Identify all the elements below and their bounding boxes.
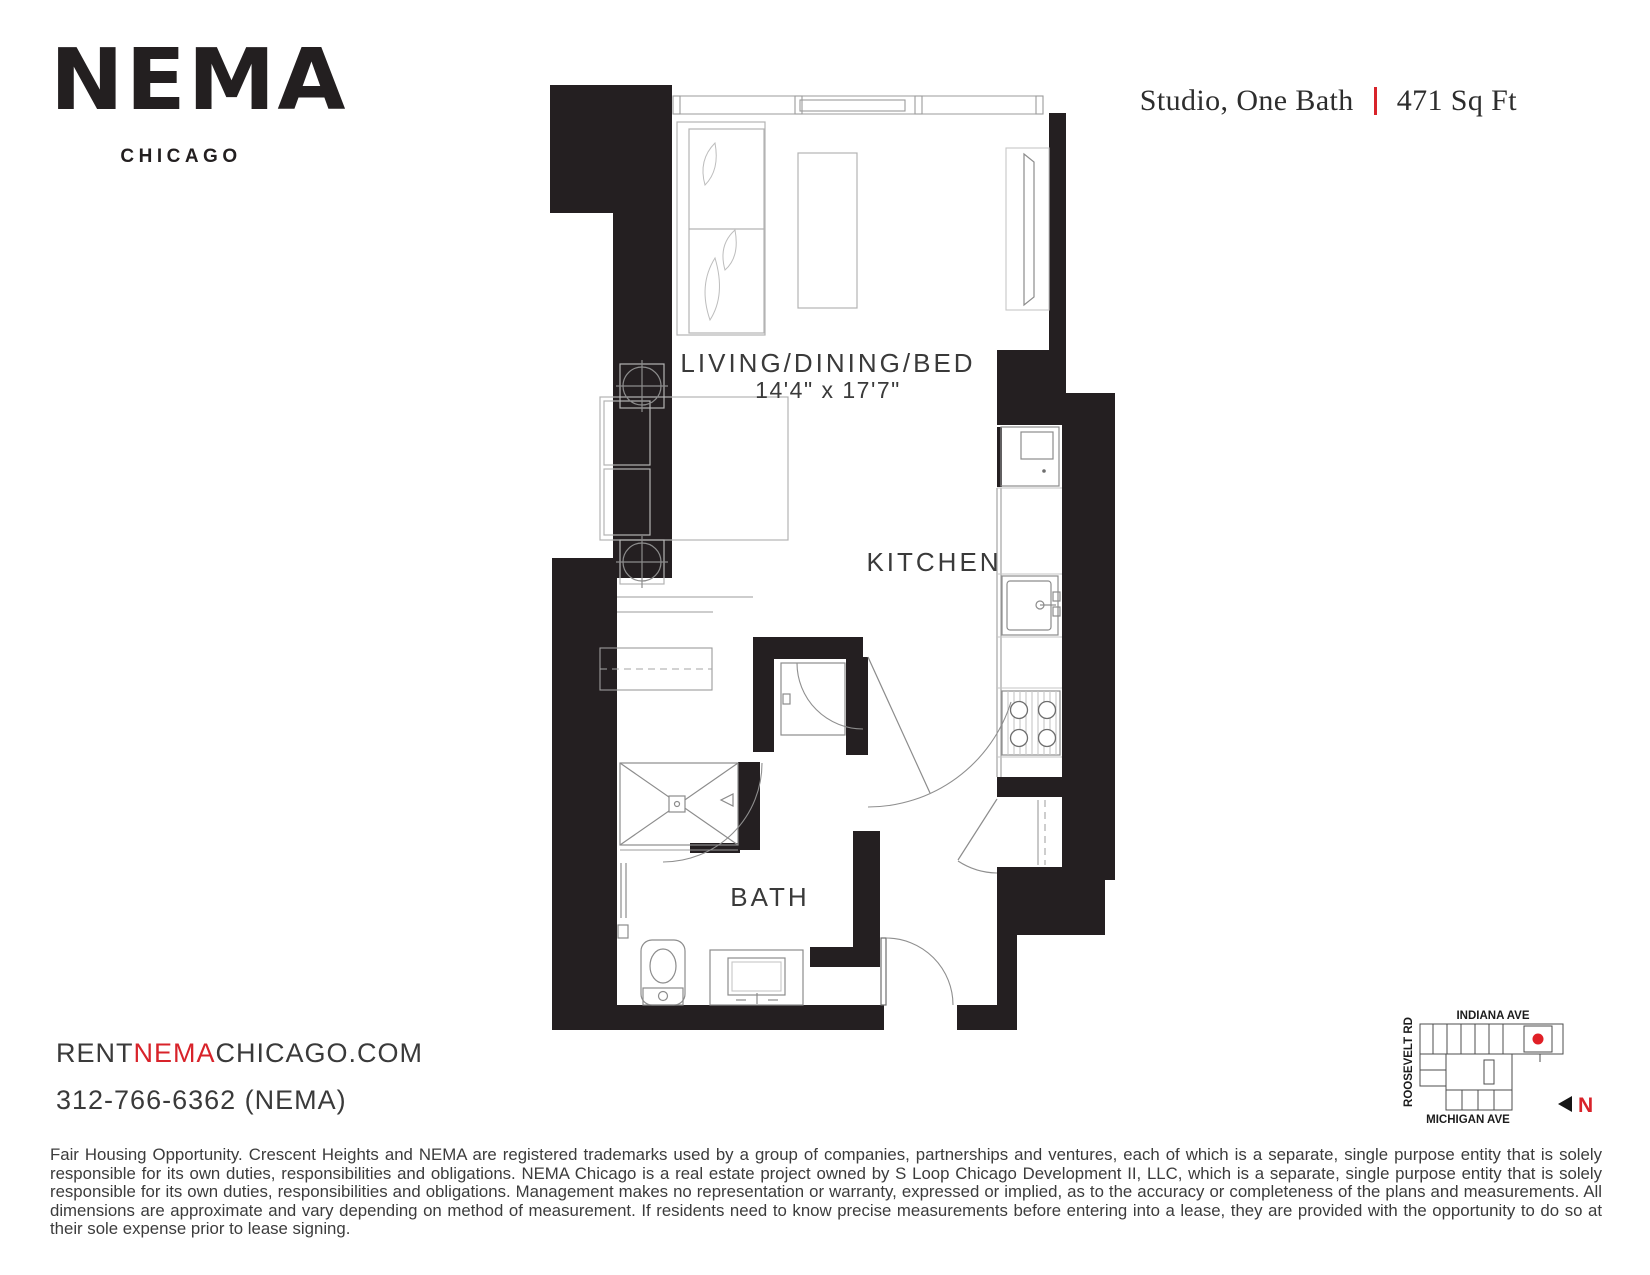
street-label-roosevelt: ROOSEVELT RD — [1403, 1017, 1415, 1107]
towel-bar — [618, 863, 628, 938]
street-label-michigan: MICHIGAN AVE — [1426, 1114, 1510, 1126]
kitchen-closet — [958, 799, 1045, 873]
flyer-page: NEMA CHICAGO Studio, One Bath 471 Sq Ft — [0, 0, 1650, 1275]
floor-plan-canvas: LIVING/DINING/BED 14'4" x 17'7" KITCHEN … — [0, 0, 1650, 1275]
north-arrow-icon — [1558, 1096, 1572, 1112]
living-room-label: LIVING/DINING/BED — [680, 348, 975, 378]
north-arrow: N — [1558, 1094, 1593, 1117]
living-room-dimensions: 14'4" x 17'7" — [755, 377, 901, 403]
stove — [1002, 691, 1060, 755]
shower — [620, 763, 738, 850]
bath-label: BATH — [730, 882, 809, 912]
kitchen-label: KITCHEN — [866, 547, 1001, 577]
toilet — [641, 940, 685, 1005]
sofa — [677, 122, 765, 335]
refrigerator — [1001, 427, 1059, 486]
street-label-indiana: INDIANA AVE — [1456, 1010, 1529, 1022]
north-label: N — [1578, 1094, 1593, 1117]
vanity-sink — [710, 950, 803, 1005]
url-part-chicago: CHICAGO.COM — [216, 1038, 424, 1068]
site-map-inset: INDIANA AVE ROOSEVELT RD MICHIGAN AVE — [1403, 1010, 1593, 1126]
window-ledge-south — [600, 597, 753, 690]
url-part-nema: NEMA — [134, 1038, 216, 1068]
tv — [1006, 148, 1049, 310]
hall-door — [868, 657, 1011, 807]
fair-housing-disclaimer: Fair Housing Opportunity. Crescent Heigh… — [50, 1146, 1602, 1239]
walls — [550, 85, 1115, 1030]
url-part-rent: RENT — [56, 1038, 134, 1068]
phone-link[interactable]: 312-766-6362 (NEMA) — [56, 1085, 347, 1116]
window-north — [673, 96, 1043, 114]
kitchen-sink — [1002, 576, 1060, 635]
unit-location-dot — [1533, 1034, 1544, 1045]
dining-table — [798, 153, 857, 308]
entry-door — [881, 938, 953, 1005]
website-link[interactable]: RENTNEMACHICAGO.COM — [56, 1038, 423, 1069]
